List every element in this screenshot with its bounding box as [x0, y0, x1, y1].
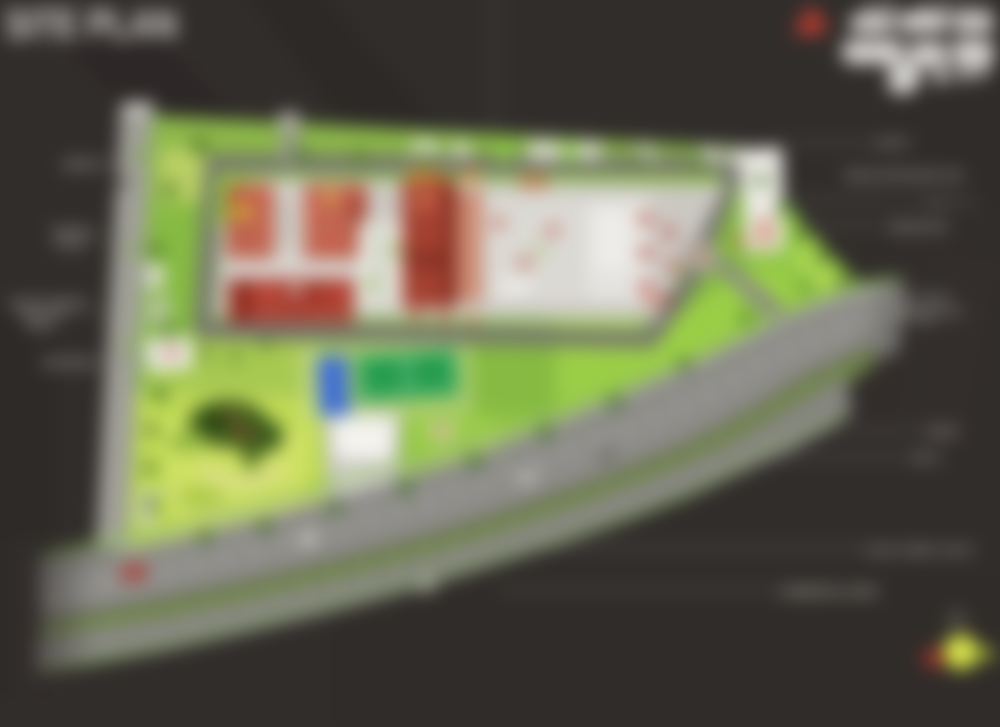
- svg-text:ENTRY 2: ENTRY 2: [64, 160, 106, 171]
- svg-text:FUTURE: FUTURE: [900, 293, 951, 304]
- svg-text:ENTRY: ENTRY: [927, 427, 960, 438]
- svg-text:SERVICE RD: SERVICE RD: [889, 222, 947, 233]
- svg-text:EXIT 1: EXIT 1: [927, 197, 977, 208]
- svg-text:DROP OFF: DROP OFF: [20, 310, 67, 320]
- svg-text:EXTENSION: EXTENSION: [894, 307, 962, 318]
- svg-text:VISITOR PARKING: VISITOR PARKING: [8, 299, 87, 309]
- svg-text:SITE PLAN: SITE PLAN: [5, 1, 177, 47]
- svg-text:CAR PARK EXIT: CAR PARK EXIT: [865, 545, 976, 557]
- svg-text:MAIN ENTRANCE RD: MAIN ENTRANCE RD: [846, 171, 963, 182]
- svg-text:GATE 3: GATE 3: [876, 138, 910, 149]
- svg-text:AREA: AREA: [28, 321, 54, 331]
- svg-text:SERVICE: SERVICE: [52, 227, 94, 238]
- svg-text:ENTRANCE: ENTRANCE: [42, 358, 95, 369]
- svg-text:GATE 1: GATE 1: [56, 239, 90, 250]
- svg-text:COMMERCIAL EDGE: COMMERCIAL EDGE: [778, 587, 878, 598]
- svg-text:EXIT 2: EXIT 2: [912, 453, 941, 464]
